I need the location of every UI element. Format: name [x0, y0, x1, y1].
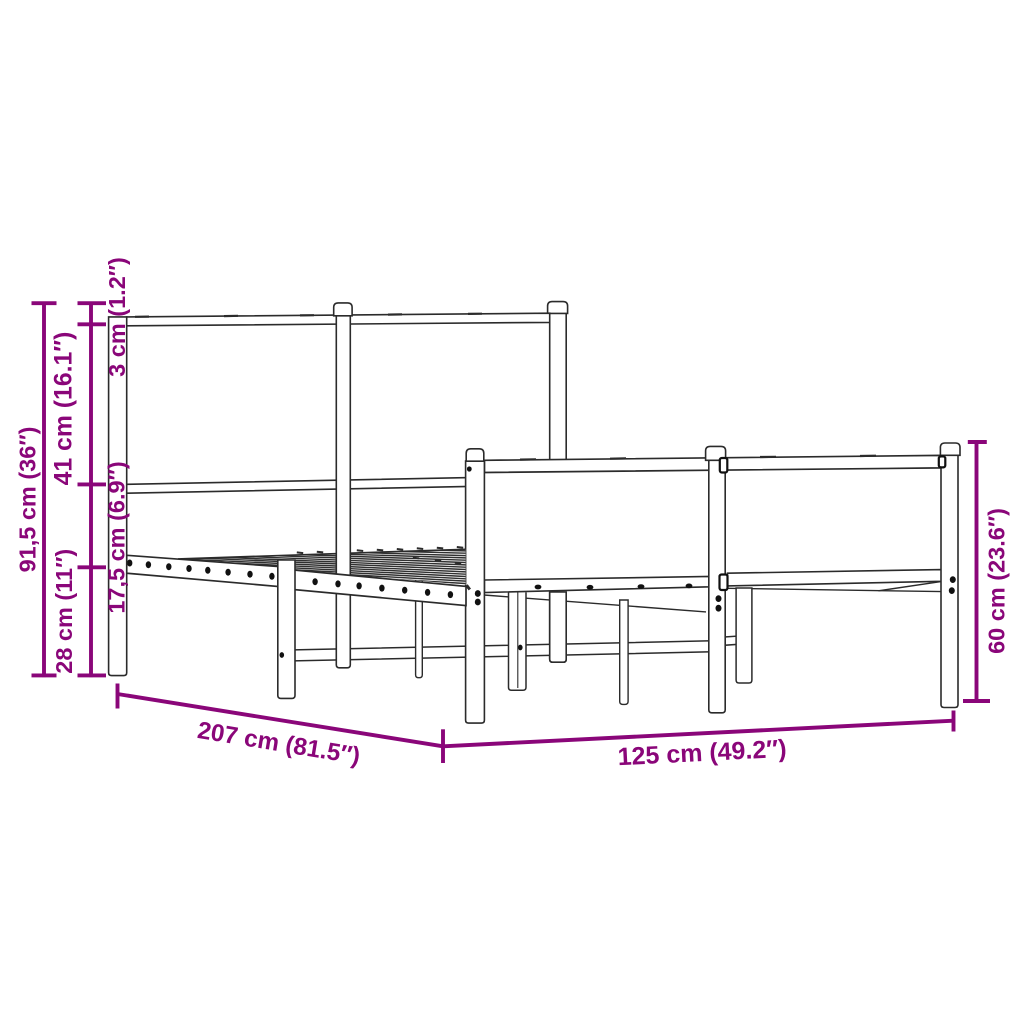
svg-text:17,5 cm (6.9″): 17,5 cm (6.9″) [104, 461, 130, 613]
svg-text:41 cm (16.1″): 41 cm (16.1″) [51, 332, 78, 486]
svg-text:28 cm (11″): 28 cm (11″) [51, 549, 77, 674]
svg-text:60 cm (23.6″): 60 cm (23.6″) [984, 508, 1010, 654]
svg-text:3 cm (1.2″): 3 cm (1.2″) [104, 257, 130, 377]
svg-text:91,5 cm (36″): 91,5 cm (36″) [14, 427, 40, 573]
